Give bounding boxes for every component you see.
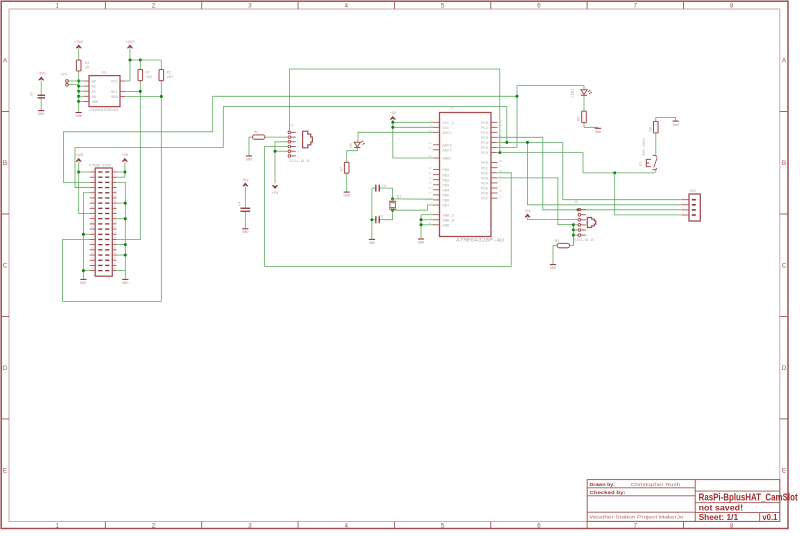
svg-text:Weather Station Project MakerJ: Weather Station Project MakerJo (590, 514, 685, 519)
svg-text:GND: GND (246, 158, 252, 162)
svg-text:v0.1: v0.1 (762, 513, 778, 522)
svg-text:C: C (3, 263, 8, 270)
svg-text:5: 5 (441, 522, 445, 529)
svg-text:C: C (782, 263, 787, 270)
svg-text:PC1: PC1 (481, 127, 489, 131)
svg-text:PB5: PB5 (443, 195, 451, 199)
svg-text:PB4: PB4 (443, 189, 451, 193)
svg-text:J1: J1 (290, 125, 295, 129)
svg-text:2K2: 2K2 (167, 76, 174, 80)
svg-text:30: 30 (499, 160, 503, 163)
svg-text:GND: GND (369, 242, 375, 246)
svg-text:ATMEGA328P-AU: ATMEGA328P-AU (456, 237, 504, 243)
svg-text:J2: J2 (574, 201, 579, 205)
svg-text:GND: GND (344, 194, 350, 198)
svg-text:GND: GND (418, 241, 424, 245)
svg-text:ADC7: ADC7 (443, 149, 452, 153)
svg-text:24: 24 (499, 125, 503, 128)
svg-text:PD0: PD0 (481, 162, 489, 166)
svg-text:R6: R6 (578, 116, 582, 121)
svg-text:4: 4 (344, 2, 348, 9)
svg-text:R3: R3 (85, 62, 89, 66)
svg-text:GND_2: GND_2 (443, 214, 455, 218)
svg-text:B: B (3, 160, 7, 167)
svg-text:PD5: PD5 (481, 188, 489, 192)
svg-text:VCC: VCC (443, 127, 451, 131)
svg-text:U5: U5 (102, 71, 107, 75)
svg-text:B: B (782, 160, 786, 167)
svg-text:ADC6: ADC6 (443, 144, 453, 148)
svg-text:GND: GND (122, 282, 128, 286)
svg-text:GND: GND (673, 124, 679, 128)
svg-text:3: 3 (248, 2, 252, 9)
svg-text:AREF: AREF (443, 158, 453, 162)
svg-text:+3V3: +3V3 (74, 41, 83, 45)
svg-text:D: D (3, 365, 8, 372)
svg-text:GND: GND (242, 231, 248, 235)
svg-text:PC5: PC5 (481, 147, 489, 151)
svg-text:A0: A0 (92, 96, 97, 100)
svg-text:Sheet: 1/1: Sheet: 1/1 (699, 513, 739, 522)
svg-text:15: 15 (428, 182, 432, 185)
svg-text:PB7: PB7 (443, 205, 450, 209)
svg-text:25: 25 (499, 130, 503, 133)
svg-text:not saved!: not saved! (699, 504, 744, 513)
svg-text:GND: GND (92, 101, 100, 105)
svg-text:A2: A2 (92, 86, 97, 90)
svg-text:1K: 1K (85, 67, 90, 71)
svg-text:PD2: PD2 (481, 172, 489, 176)
svg-text:R4: R4 (254, 131, 259, 135)
svg-text:E: E (782, 467, 786, 474)
svg-text:10: 10 (499, 190, 503, 193)
svg-text:PB0: PB0 (443, 169, 451, 173)
svg-text:+5V: +5V (389, 112, 396, 116)
svg-text:6: 6 (537, 522, 541, 529)
svg-text:PD6: PD6 (481, 193, 489, 197)
svg-text:7: 7 (633, 2, 637, 9)
svg-text:VCC: VCC (111, 81, 119, 85)
svg-text:GND_3: GND_3 (443, 219, 455, 223)
svg-text:CFG: CFG (61, 74, 69, 78)
svg-text:PC6: PC6 (481, 152, 489, 156)
svg-text:S1: S1 (640, 161, 644, 166)
svg-text:GND: GND (550, 267, 556, 271)
svg-text:R7: R7 (340, 167, 344, 172)
svg-text:5: 5 (441, 2, 445, 9)
svg-text:+5V: +5V (242, 179, 249, 183)
svg-text:R2: R2 (167, 72, 171, 76)
svg-text:C4: C4 (238, 201, 242, 206)
svg-text:+3V3: +3V3 (37, 73, 46, 77)
svg-text:22: 22 (428, 147, 432, 150)
svg-text:R5: R5 (555, 240, 560, 244)
svg-text:E: E (3, 467, 7, 474)
svg-text:PB3: PB3 (443, 184, 451, 188)
svg-text:A: A (782, 58, 787, 65)
svg-text:C2: C2 (379, 216, 384, 220)
svg-text:GND: GND (595, 131, 601, 135)
svg-text:U2: U2 (450, 107, 455, 111)
svg-text:4: 4 (344, 522, 348, 529)
svg-text:+5V: +5V (272, 192, 279, 196)
svg-text:11: 11 (499, 195, 503, 198)
svg-text:D: D (782, 365, 787, 372)
svg-text:8: 8 (730, 2, 734, 9)
svg-text:SCL: SCL (111, 91, 119, 95)
svg-text:31: 31 (499, 165, 503, 168)
svg-text:13: 13 (428, 172, 432, 175)
svg-text:2: 2 (152, 522, 156, 529)
svg-text:PD1: PD1 (481, 167, 489, 171)
svg-text:14: 14 (428, 177, 432, 180)
svg-text:A: A (3, 58, 8, 65)
svg-text:6: 6 (537, 2, 541, 9)
svg-text:17: 17 (428, 192, 432, 195)
svg-text:2K2: 2K2 (146, 76, 153, 80)
svg-text:C5: C5 (31, 91, 35, 96)
svg-text:16: 16 (428, 187, 432, 190)
svg-text:GND: GND (80, 282, 86, 286)
svg-text:PB2: PB2 (443, 179, 451, 183)
svg-text:C3: C3 (382, 185, 387, 189)
svg-text:PC3: PC3 (481, 137, 489, 141)
svg-text:SDA: SDA (111, 96, 119, 100)
svg-text:8: 8 (730, 522, 734, 529)
svg-text:GND: GND (38, 113, 44, 117)
svg-text:RJ11-6L-B: RJ11-6L-B (290, 160, 311, 164)
svg-text:RasPi-BplusHAT_CamSlot: RasPi-BplusHAT_CamSlot (699, 492, 799, 503)
svg-text:A1: A1 (92, 91, 97, 95)
svg-text:PD4: PD4 (481, 183, 489, 187)
svg-text:PC4: PC4 (481, 142, 489, 146)
svg-text:+3V3: +3V3 (74, 154, 83, 158)
svg-text:PC0: PC0 (481, 122, 489, 126)
svg-text:D5: D5 (350, 142, 354, 147)
svg-text:+5V: +5V (122, 154, 129, 158)
svg-text:AVCC: AVCC (443, 132, 453, 136)
svg-text:+5V: +5V (524, 210, 531, 214)
svg-text:B3F-10XX: B3F-10XX (643, 137, 647, 155)
svg-text:3: 3 (248, 522, 252, 529)
svg-text:LED1: LED1 (571, 88, 575, 98)
svg-text:R1: R1 (146, 72, 151, 76)
svg-text:R8: R8 (649, 126, 653, 131)
svg-text:2: 2 (152, 2, 156, 9)
svg-text:VCC_2: VCC_2 (443, 122, 455, 126)
svg-text:Christopher Rush: Christopher Rush (631, 482, 681, 487)
svg-text:RJ11-6L-B: RJ11-6L-B (574, 239, 595, 243)
svg-text:28: 28 (499, 145, 503, 148)
svg-text:PD7: PD7 (481, 198, 488, 202)
svg-text:PB6: PB6 (443, 200, 451, 204)
svg-text:Drawn by:: Drawn by: (590, 482, 616, 487)
svg-text:7: 7 (633, 522, 637, 529)
svg-text:19: 19 (428, 142, 432, 145)
svg-text:SV1: SV1 (690, 190, 698, 194)
svg-text:*1: *1 (106, 276, 110, 281)
svg-text:23: 23 (499, 120, 503, 123)
svg-text:1: 1 (55, 2, 59, 9)
svg-text:GND: GND (443, 224, 451, 228)
svg-text:24AA025E48: 24AA025E48 (89, 109, 118, 113)
svg-text:Checked by:: Checked by: (590, 490, 627, 495)
svg-text:32: 32 (499, 170, 503, 173)
svg-text:WP: WP (92, 81, 97, 85)
svg-text:PC2: PC2 (481, 132, 489, 136)
svg-text:PD3: PD3 (481, 178, 489, 182)
svg-text:GND: GND (76, 115, 82, 119)
svg-text:1: 1 (55, 522, 59, 529)
svg-text:PB1: PB1 (443, 174, 451, 178)
svg-text:12: 12 (428, 167, 432, 170)
svg-text:+3V3: +3V3 (126, 41, 135, 45)
